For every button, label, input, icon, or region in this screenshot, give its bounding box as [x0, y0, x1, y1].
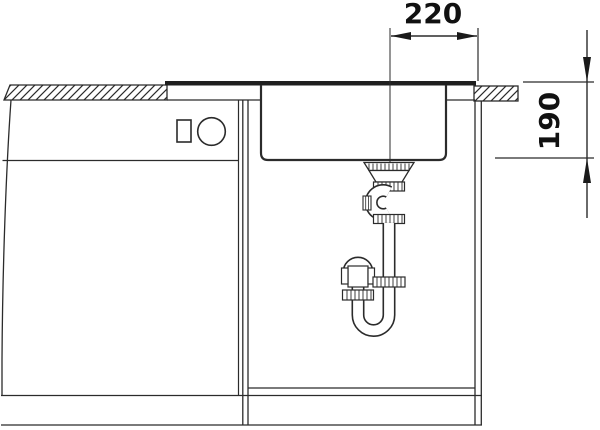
knurled-nut-4 [343, 290, 374, 300]
elbow-clip [363, 196, 371, 210]
dim-depth-arrow-bottom [583, 158, 591, 183]
left-door-front [2, 100, 239, 395]
drain-and-siphon [342, 163, 415, 331]
sink-bowl [261, 85, 446, 160]
countertop-right-section [474, 86, 518, 101]
control-knob [198, 118, 226, 146]
countertop-left-section [4, 85, 167, 100]
dimension-depth: 190 [495, 30, 594, 218]
dim-width-arrow-left [391, 32, 411, 40]
hex-coupling-left-flat [342, 268, 349, 284]
hex-coupling-body [348, 266, 368, 287]
technical-drawing-canvas: 220 190 [0, 0, 600, 430]
drain-flange-lower [369, 171, 409, 183]
dim-width-label: 220 [404, 0, 462, 30]
knurled-nut-2 [374, 215, 405, 224]
door-left-edge [2, 100, 11, 395]
knurled-nut-3 [373, 277, 405, 287]
sink-rim [165, 81, 476, 86]
dim-depth-arrow-top [583, 57, 591, 82]
control-rectangle [177, 120, 191, 142]
cabinet [1, 100, 482, 425]
dimension-width: 220 [391, 0, 478, 81]
dim-width-arrow-right [457, 32, 477, 40]
dim-depth-label: 190 [533, 92, 566, 150]
elbow-body [371, 191, 389, 215]
sink-section-diagram: 220 190 [0, 0, 600, 430]
